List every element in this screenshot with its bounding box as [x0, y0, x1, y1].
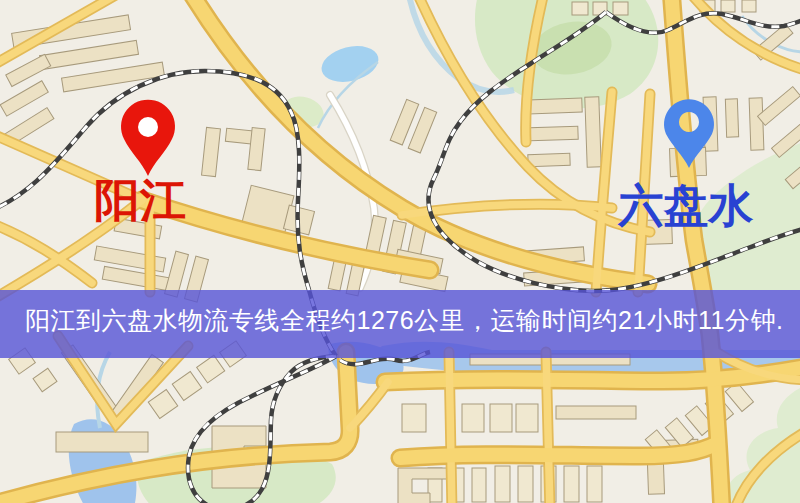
origin-city-label: 阳江: [94, 174, 186, 226]
map-canvas: 阳江 六盘水: [0, 0, 800, 503]
destination-city-label: 六盘水: [617, 180, 754, 231]
route-info-banner: 阳江到六盘水物流专线全程约1276公里，运输时间约21小时11分钟.: [0, 290, 800, 358]
route-info-text: 阳江到六盘水物流专线全程约1276公里，运输时间约21小时11分钟.: [25, 304, 783, 337]
map-viewport[interactable]: 阳江 六盘水 阳江到六盘水物流专线全程约1276公里，运输时间约21小时11分钟…: [0, 0, 800, 503]
origin-pin-hole: [138, 117, 158, 137]
